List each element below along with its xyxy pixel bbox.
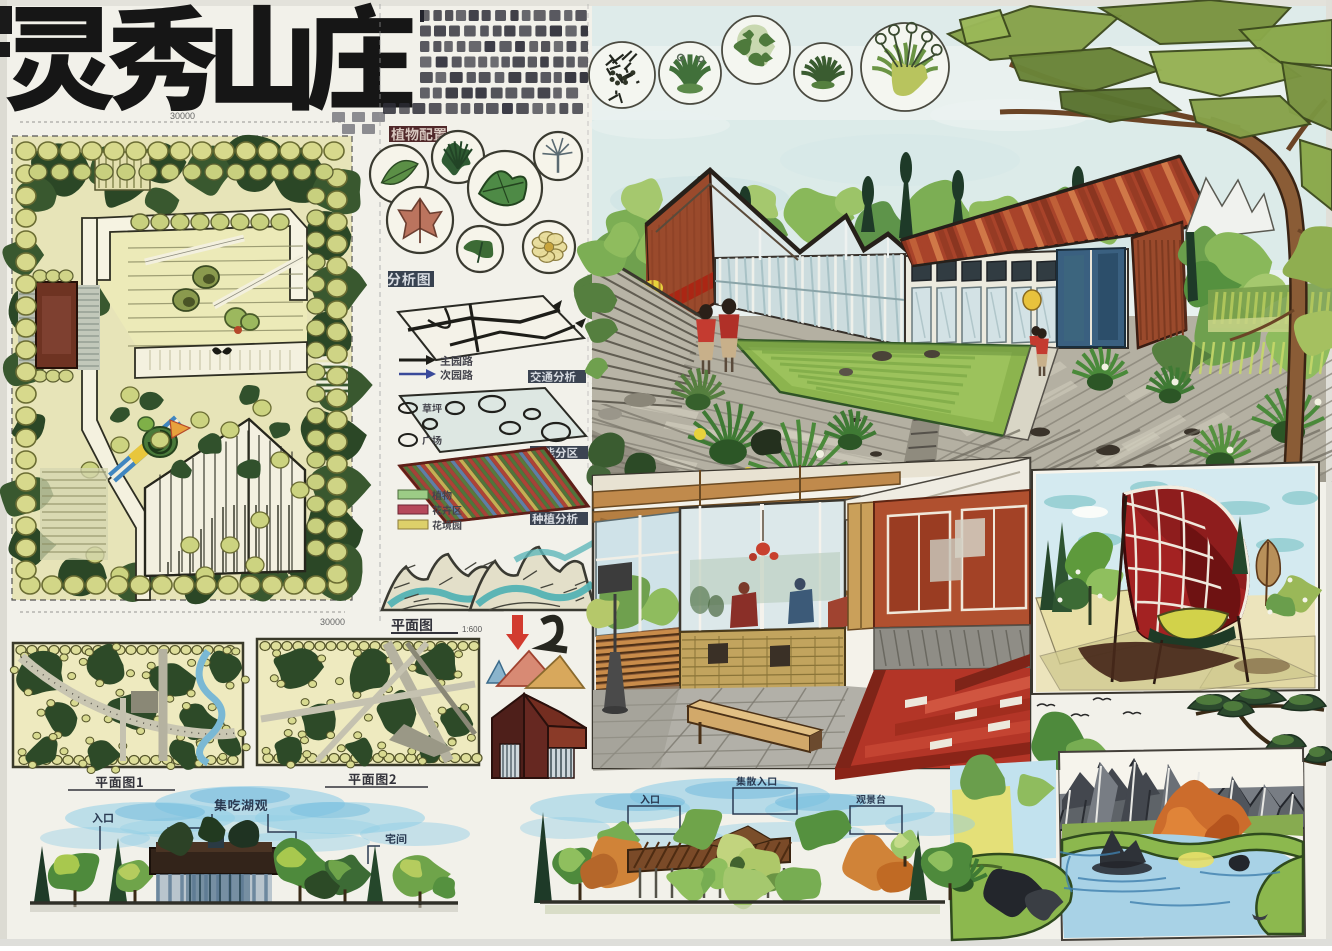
svg-text:1:600: 1:600 xyxy=(462,625,483,634)
svg-text:30000: 30000 xyxy=(170,111,195,121)
svg-text:30000: 30000 xyxy=(320,617,345,627)
